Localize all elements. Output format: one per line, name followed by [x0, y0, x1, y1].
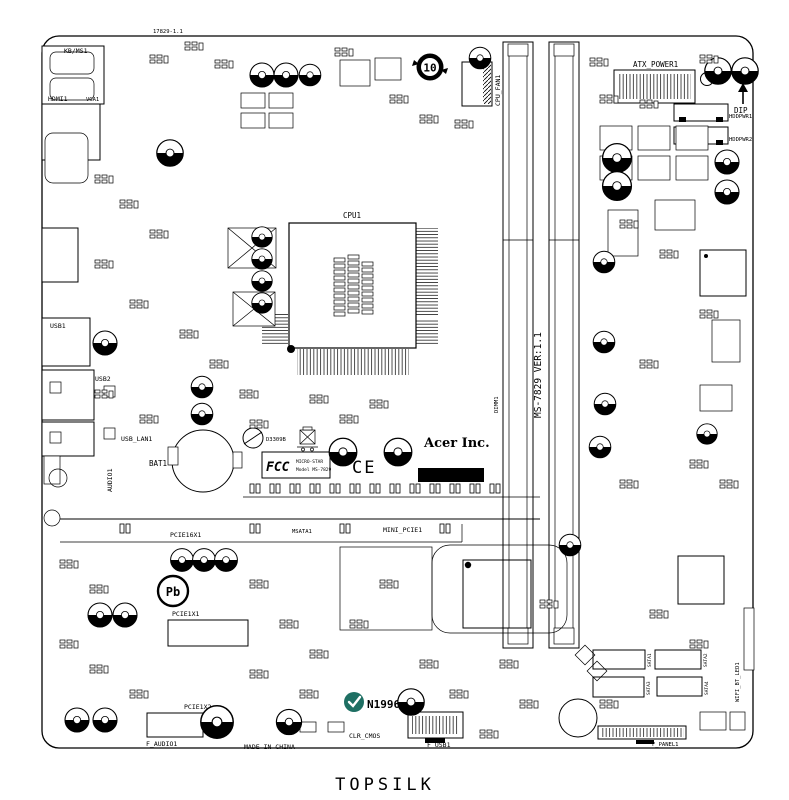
sata1-label: SATA1	[647, 653, 653, 667]
clr-cmos-label: CLR_CMOS	[349, 732, 380, 740]
sata-connector	[657, 677, 702, 696]
made-in-china: MADE IN CHINA	[244, 743, 295, 751]
wifi-bt-led1-label: WIFI_BT_LED1	[735, 662, 741, 702]
topsilk-title: TOPSILK	[335, 775, 435, 795]
pcie1x1-slot	[168, 620, 248, 646]
board-code: 17829-1.1	[153, 29, 183, 35]
atx-power1-label: ATX_POWER1	[633, 60, 678, 69]
usb1-label: USB1	[50, 322, 66, 330]
sata-connector	[593, 677, 644, 697]
hdmi1-label: HDMI1	[48, 95, 68, 103]
pin1-dot	[287, 345, 295, 353]
fcc-logo: FCC MICRO-STAR Model MS-7829	[262, 452, 332, 478]
dip-marker: DIP	[734, 83, 748, 115]
topsilk-drawing: 17829-1.1 KB/MS1 HDMI1 VGA1 USB1 USB2 US…	[0, 0, 789, 800]
pin-pair-row	[243, 484, 540, 497]
pch-chip	[463, 560, 531, 628]
pcie1x1-label: PCIE1X1	[172, 610, 199, 618]
cpu-socket: CPU1	[262, 211, 438, 375]
n1996-text: N1996	[367, 698, 400, 711]
cpu-pin-comb-right2	[416, 320, 438, 346]
fcc-line1: MICRO-STAR	[296, 459, 323, 465]
sata3-label: SATA3	[646, 681, 652, 695]
pcie16x1-label: PCIE16X1	[170, 531, 201, 539]
pb-text: Pb	[166, 585, 180, 599]
d3309b-mark: D3309B	[243, 428, 287, 448]
n1996-logo: N1996	[344, 692, 400, 712]
f-panel1-label: F_PANEL1	[652, 742, 679, 748]
sata4-label: SATA4	[704, 681, 710, 695]
hddpwr1-label: HDDPWR1	[729, 114, 752, 120]
f-usb1-label: F_USB1	[427, 741, 451, 749]
sata2-label: SATA2	[703, 653, 709, 667]
pcie1x2-slot	[147, 713, 203, 737]
lower-right-region: SATA1 SATA2 SATA3 SATA4 WIFI_BT_LED1 F_P…	[559, 556, 754, 748]
mini-pcie1-label: MINI_PCIE1	[383, 526, 422, 534]
sata-connector	[655, 650, 701, 669]
msata1-label: MSATA1	[292, 529, 312, 535]
certification-branding: D3309B FCC MICRO-STAR Model MS-7829 CE A…	[243, 427, 490, 482]
rear-io-ports: KB/MS1 HDMI1 VGA1 USB1 USB2 USB_LAN1 AUD…	[42, 46, 152, 526]
socket-pad-grid	[334, 255, 373, 316]
usb2-label: USB2	[95, 375, 111, 383]
f-audio1-label: F_AUDIO1	[146, 740, 177, 748]
pb-free-icon: Pb	[158, 576, 188, 606]
acer-logo-text: Acer Inc.	[423, 436, 490, 451]
coin-battery: BAT1	[149, 430, 242, 492]
barcode-block	[418, 468, 484, 482]
weee-bin-icon	[297, 427, 318, 451]
hddpwr2-label: HDDPWR2	[729, 137, 752, 143]
cpu-pin-comb-right	[416, 228, 438, 316]
capacitors	[65, 47, 758, 738]
d3309b-text: D3309B	[266, 437, 287, 443]
fcc-line2: Model MS-7829	[296, 467, 332, 473]
cpu-fan1-label: CPU_FAN1	[494, 75, 502, 106]
board-silkscreen-svg: 17829-1.1 KB/MS1 HDMI1 VGA1 USB1 USB2 US…	[0, 0, 789, 800]
dimm1-label: DIMM1	[494, 396, 500, 413]
audio1-label: AUDIO1	[106, 468, 114, 492]
cpu1-label: CPU1	[343, 211, 361, 220]
ce-mark: CE	[352, 458, 376, 478]
vga1-label: VGA1	[86, 97, 99, 103]
recycle-10-number: 10	[423, 62, 436, 75]
fcc-text: FCC	[266, 460, 290, 475]
bat1-label: BAT1	[149, 459, 167, 468]
recycle-10-icon: 10	[412, 54, 448, 81]
cpu-pin-comb-bottom	[297, 349, 409, 375]
slot-band: PCIE16X1 MSATA1 MINI_PCIE1	[60, 519, 540, 542]
buzzer	[559, 699, 597, 737]
board-version-vertical: MS-7829 VER:1.1	[533, 332, 544, 418]
atx-power-connector: ATX_POWER1	[614, 60, 714, 103]
usb-lan1-label: USB_LAN1	[121, 435, 152, 443]
kb-ms1-label: KB/MS1	[64, 47, 88, 55]
